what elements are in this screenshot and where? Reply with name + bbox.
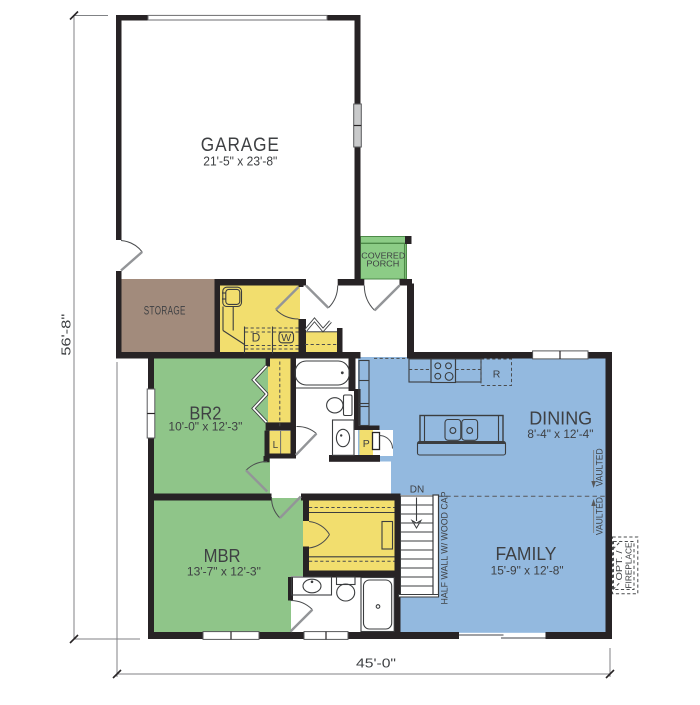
svg-text:15'-9" x 12'-8": 15'-9" x 12'-8" [491,563,564,577]
svg-text:VAULTED: VAULTED [595,448,605,486]
svg-text:MBR: MBR [204,545,241,566]
svg-text:10'-0" x 12'-3": 10'-0" x 12'-3" [168,420,242,434]
svg-text:STORAGE: STORAGE [144,306,186,318]
svg-text:L: L [273,440,279,451]
svg-text:VAULTED: VAULTED [595,497,605,535]
svg-text:56'-8": 56'-8" [60,314,74,356]
svg-text:DN: DN [410,485,424,496]
svg-text:D: D [252,331,261,345]
svg-text:DINING: DINING [529,407,592,428]
svg-text:HALF WALL W/ WOOD CAP: HALF WALL W/ WOOD CAP [440,492,450,605]
svg-text:P: P [363,438,370,450]
svg-text:FIREPLACE: FIREPLACE [625,543,634,589]
svg-text:21'-5" x 23'-8": 21'-5" x 23'-8" [203,154,277,169]
svg-text:8'-4" x 12'-4": 8'-4" x 12'-4" [527,427,593,441]
svg-text:13'-7" x 12'-3": 13'-7" x 12'-3" [187,565,261,579]
svg-text:45'-0": 45'-0" [356,657,396,671]
svg-text:OPT. /: OPT. / [615,549,624,580]
svg-text:PORCH: PORCH [366,260,399,269]
svg-text:FAMILY: FAMILY [496,543,557,564]
svg-text:W: W [281,332,291,344]
svg-text:R: R [493,369,501,381]
